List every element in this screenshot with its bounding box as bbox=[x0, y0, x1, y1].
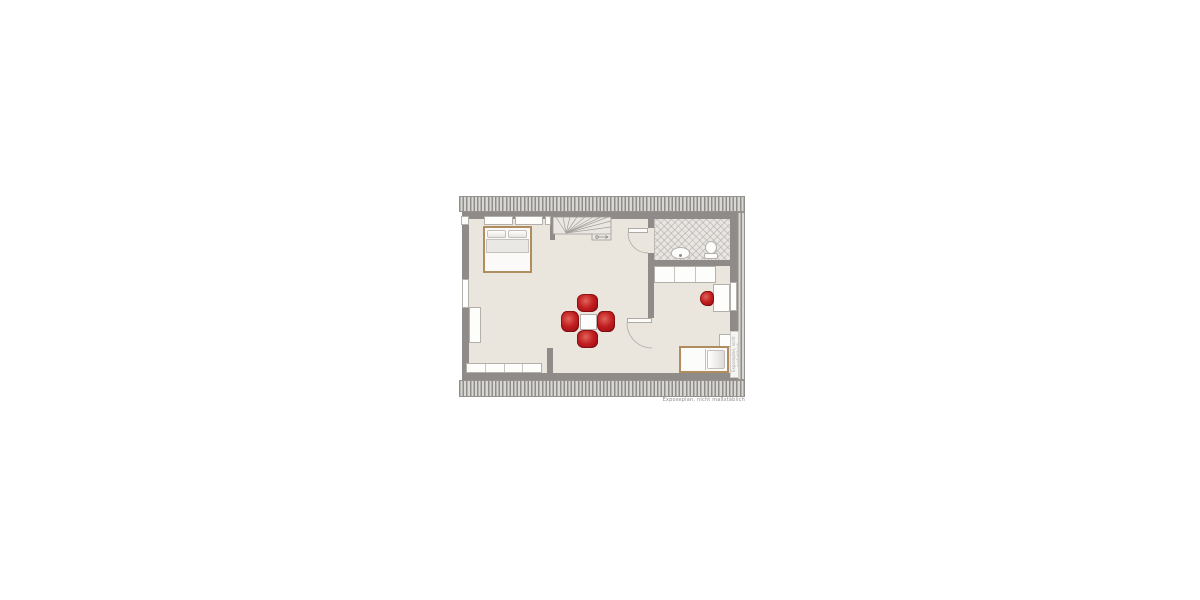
bathroom-door-leaf bbox=[628, 228, 648, 233]
dining-table bbox=[580, 314, 597, 330]
floor-plan-canvas: Exposeplan, nicht maßstäblich Exposeplan… bbox=[0, 0, 1200, 600]
toilet-tank bbox=[704, 253, 718, 259]
watermark-text: Exposeplan, nicht maßstäblich bbox=[640, 397, 745, 404]
partition-wall-upper bbox=[648, 219, 654, 228]
desk-chair bbox=[700, 291, 714, 306]
duvet bbox=[682, 349, 706, 370]
upholstered-chair-right bbox=[597, 311, 615, 332]
upholstered-chair-bottom bbox=[577, 330, 598, 348]
window-left bbox=[462, 279, 469, 308]
eave-hatch-bottom bbox=[459, 380, 745, 397]
pillow bbox=[508, 230, 527, 238]
side-watermark: Exposeplan, nicht maßstäblich bbox=[730, 331, 739, 378]
wardrobe bbox=[654, 266, 716, 283]
pillow bbox=[487, 230, 506, 238]
lower-wall-stub bbox=[547, 348, 553, 373]
bathroom-tile-floor bbox=[654, 219, 730, 260]
double-bed bbox=[483, 226, 532, 273]
wall-cap-stair bbox=[545, 216, 551, 225]
upholstered-chair-top bbox=[577, 294, 598, 312]
sink-faucet-dot bbox=[679, 254, 682, 257]
upholstered-chair-left bbox=[561, 311, 579, 332]
window-top-1 bbox=[484, 216, 513, 225]
window-top-2 bbox=[515, 216, 543, 225]
window-right bbox=[730, 282, 737, 311]
bedroom-door-leaf bbox=[627, 318, 652, 323]
desk bbox=[713, 284, 730, 312]
wall-cap-top-left bbox=[461, 216, 469, 225]
duvet bbox=[486, 239, 529, 253]
cabinet bbox=[469, 307, 481, 343]
wall-bottom bbox=[462, 373, 737, 380]
bathroom-sink bbox=[671, 247, 690, 259]
pillow bbox=[707, 350, 725, 369]
single-bed bbox=[679, 346, 729, 373]
sideboard bbox=[466, 363, 542, 373]
eave-hatch-top bbox=[459, 196, 745, 212]
